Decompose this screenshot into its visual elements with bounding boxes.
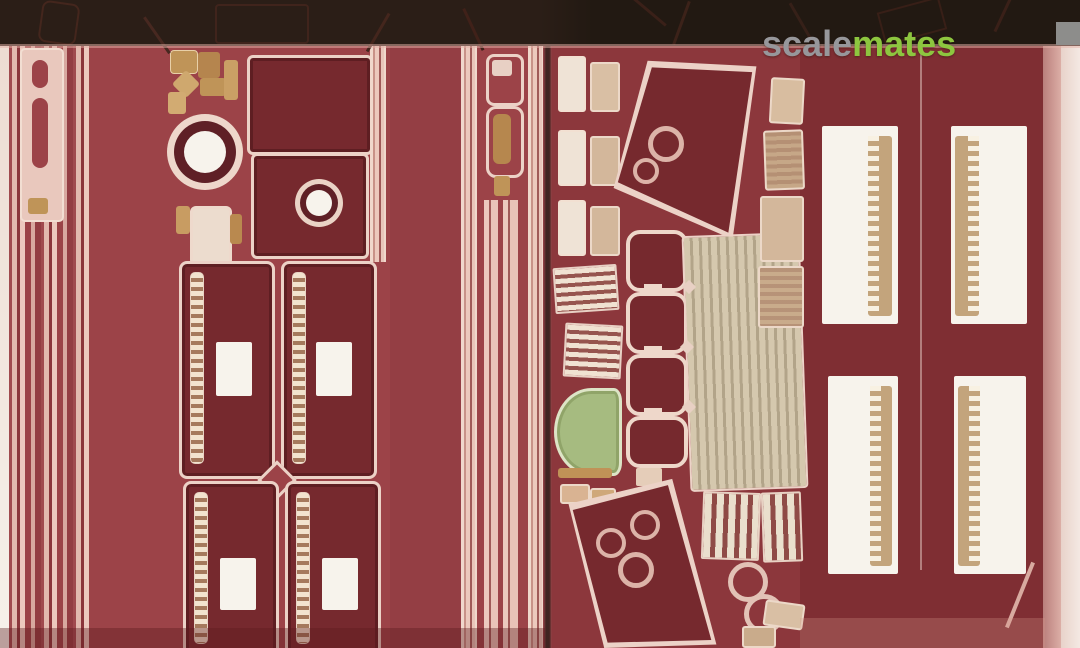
slat-grate-part [761, 491, 803, 562]
small-bracket-part [742, 626, 776, 648]
etched-outline-shadow [215, 4, 309, 44]
hatch-ring-core [184, 131, 226, 173]
bracket-fill [492, 60, 512, 76]
zipper-teeth [868, 136, 879, 316]
textured-part [758, 266, 804, 328]
chain-link-part [626, 292, 688, 354]
brass-fitting [198, 52, 220, 78]
long-rail-part [528, 46, 543, 648]
zipper-teeth [968, 136, 979, 316]
gray-corner-block [1056, 22, 1080, 45]
cover-plate-part [247, 55, 373, 155]
brass-fitting [494, 176, 510, 196]
fret-right-edge-rail [1043, 46, 1061, 648]
brass-fitting [230, 214, 242, 244]
zipper-teeth [969, 386, 980, 566]
small-bracket-part [558, 130, 586, 186]
square-cutout [316, 342, 352, 396]
fret-left-bottom-band [0, 628, 545, 648]
small-bracket-part [558, 56, 586, 112]
fret-left-white-edge [0, 46, 9, 648]
photo-seam-shadow [543, 46, 552, 648]
zipper-strip-part [868, 136, 892, 316]
ladder-strip-part [563, 323, 624, 380]
hinge-bead-strip [292, 272, 306, 464]
square-cutout [220, 558, 256, 610]
photo-etch-fret-photo: scalemates [0, 0, 1080, 648]
zipper-teeth [870, 386, 881, 566]
etch-guide-line [920, 50, 922, 570]
slot-cutout [32, 60, 48, 88]
square-cutout [216, 342, 252, 396]
hinge-bead-strip [194, 492, 208, 644]
brass-fitting [224, 60, 238, 100]
watermark-mates-text: mates [852, 23, 956, 64]
small-bracket-part [590, 136, 620, 186]
hinge-bead-strip [190, 272, 204, 464]
long-rail-part [461, 46, 477, 648]
brass-fitting [28, 198, 48, 214]
small-bracket-part [590, 206, 620, 256]
hinge-bead-strip [296, 492, 310, 644]
brass-insert [493, 114, 511, 164]
chain-link-part [626, 354, 688, 416]
zipper-strip-part [958, 386, 980, 566]
plate-ring-hole [618, 552, 654, 588]
slat-grate-part [701, 491, 761, 561]
small-bracket-part [590, 62, 620, 112]
slot-cutout [32, 98, 48, 168]
textured-part [763, 129, 805, 190]
green-wedge-part [554, 388, 622, 476]
textured-part [760, 196, 804, 262]
brass-fitting [168, 92, 186, 114]
small-bracket-part [558, 200, 586, 256]
textured-part [769, 77, 805, 125]
square-cutout [322, 558, 358, 610]
brass-fitting [200, 78, 226, 96]
watermark-scalemates: scalemates [762, 26, 956, 62]
fret-left-shade-column [390, 46, 462, 648]
chain-link-part [626, 416, 688, 468]
zipper-strip-part [955, 136, 979, 316]
plate-ring-hole [630, 510, 660, 540]
etched-outline-shadow [37, 0, 80, 46]
watermark-scale-text: scale [762, 23, 852, 64]
plate-ring-hole [596, 528, 626, 558]
brass-fitting [176, 206, 190, 234]
long-rail-part [370, 46, 386, 262]
plate-ring-hole [648, 126, 684, 162]
twin-strip-part [484, 200, 518, 648]
chain-link-part [626, 230, 688, 292]
brass-fitting [558, 468, 612, 478]
fret-right-edge-light [1061, 46, 1080, 648]
port-ring-core [306, 190, 332, 216]
small-plate-part [190, 206, 232, 266]
zipper-strip-part [870, 386, 892, 566]
plate-ring-hole [633, 158, 659, 184]
ladder-strip-part [552, 264, 619, 314]
fret-right-bottom-band [800, 618, 1045, 648]
